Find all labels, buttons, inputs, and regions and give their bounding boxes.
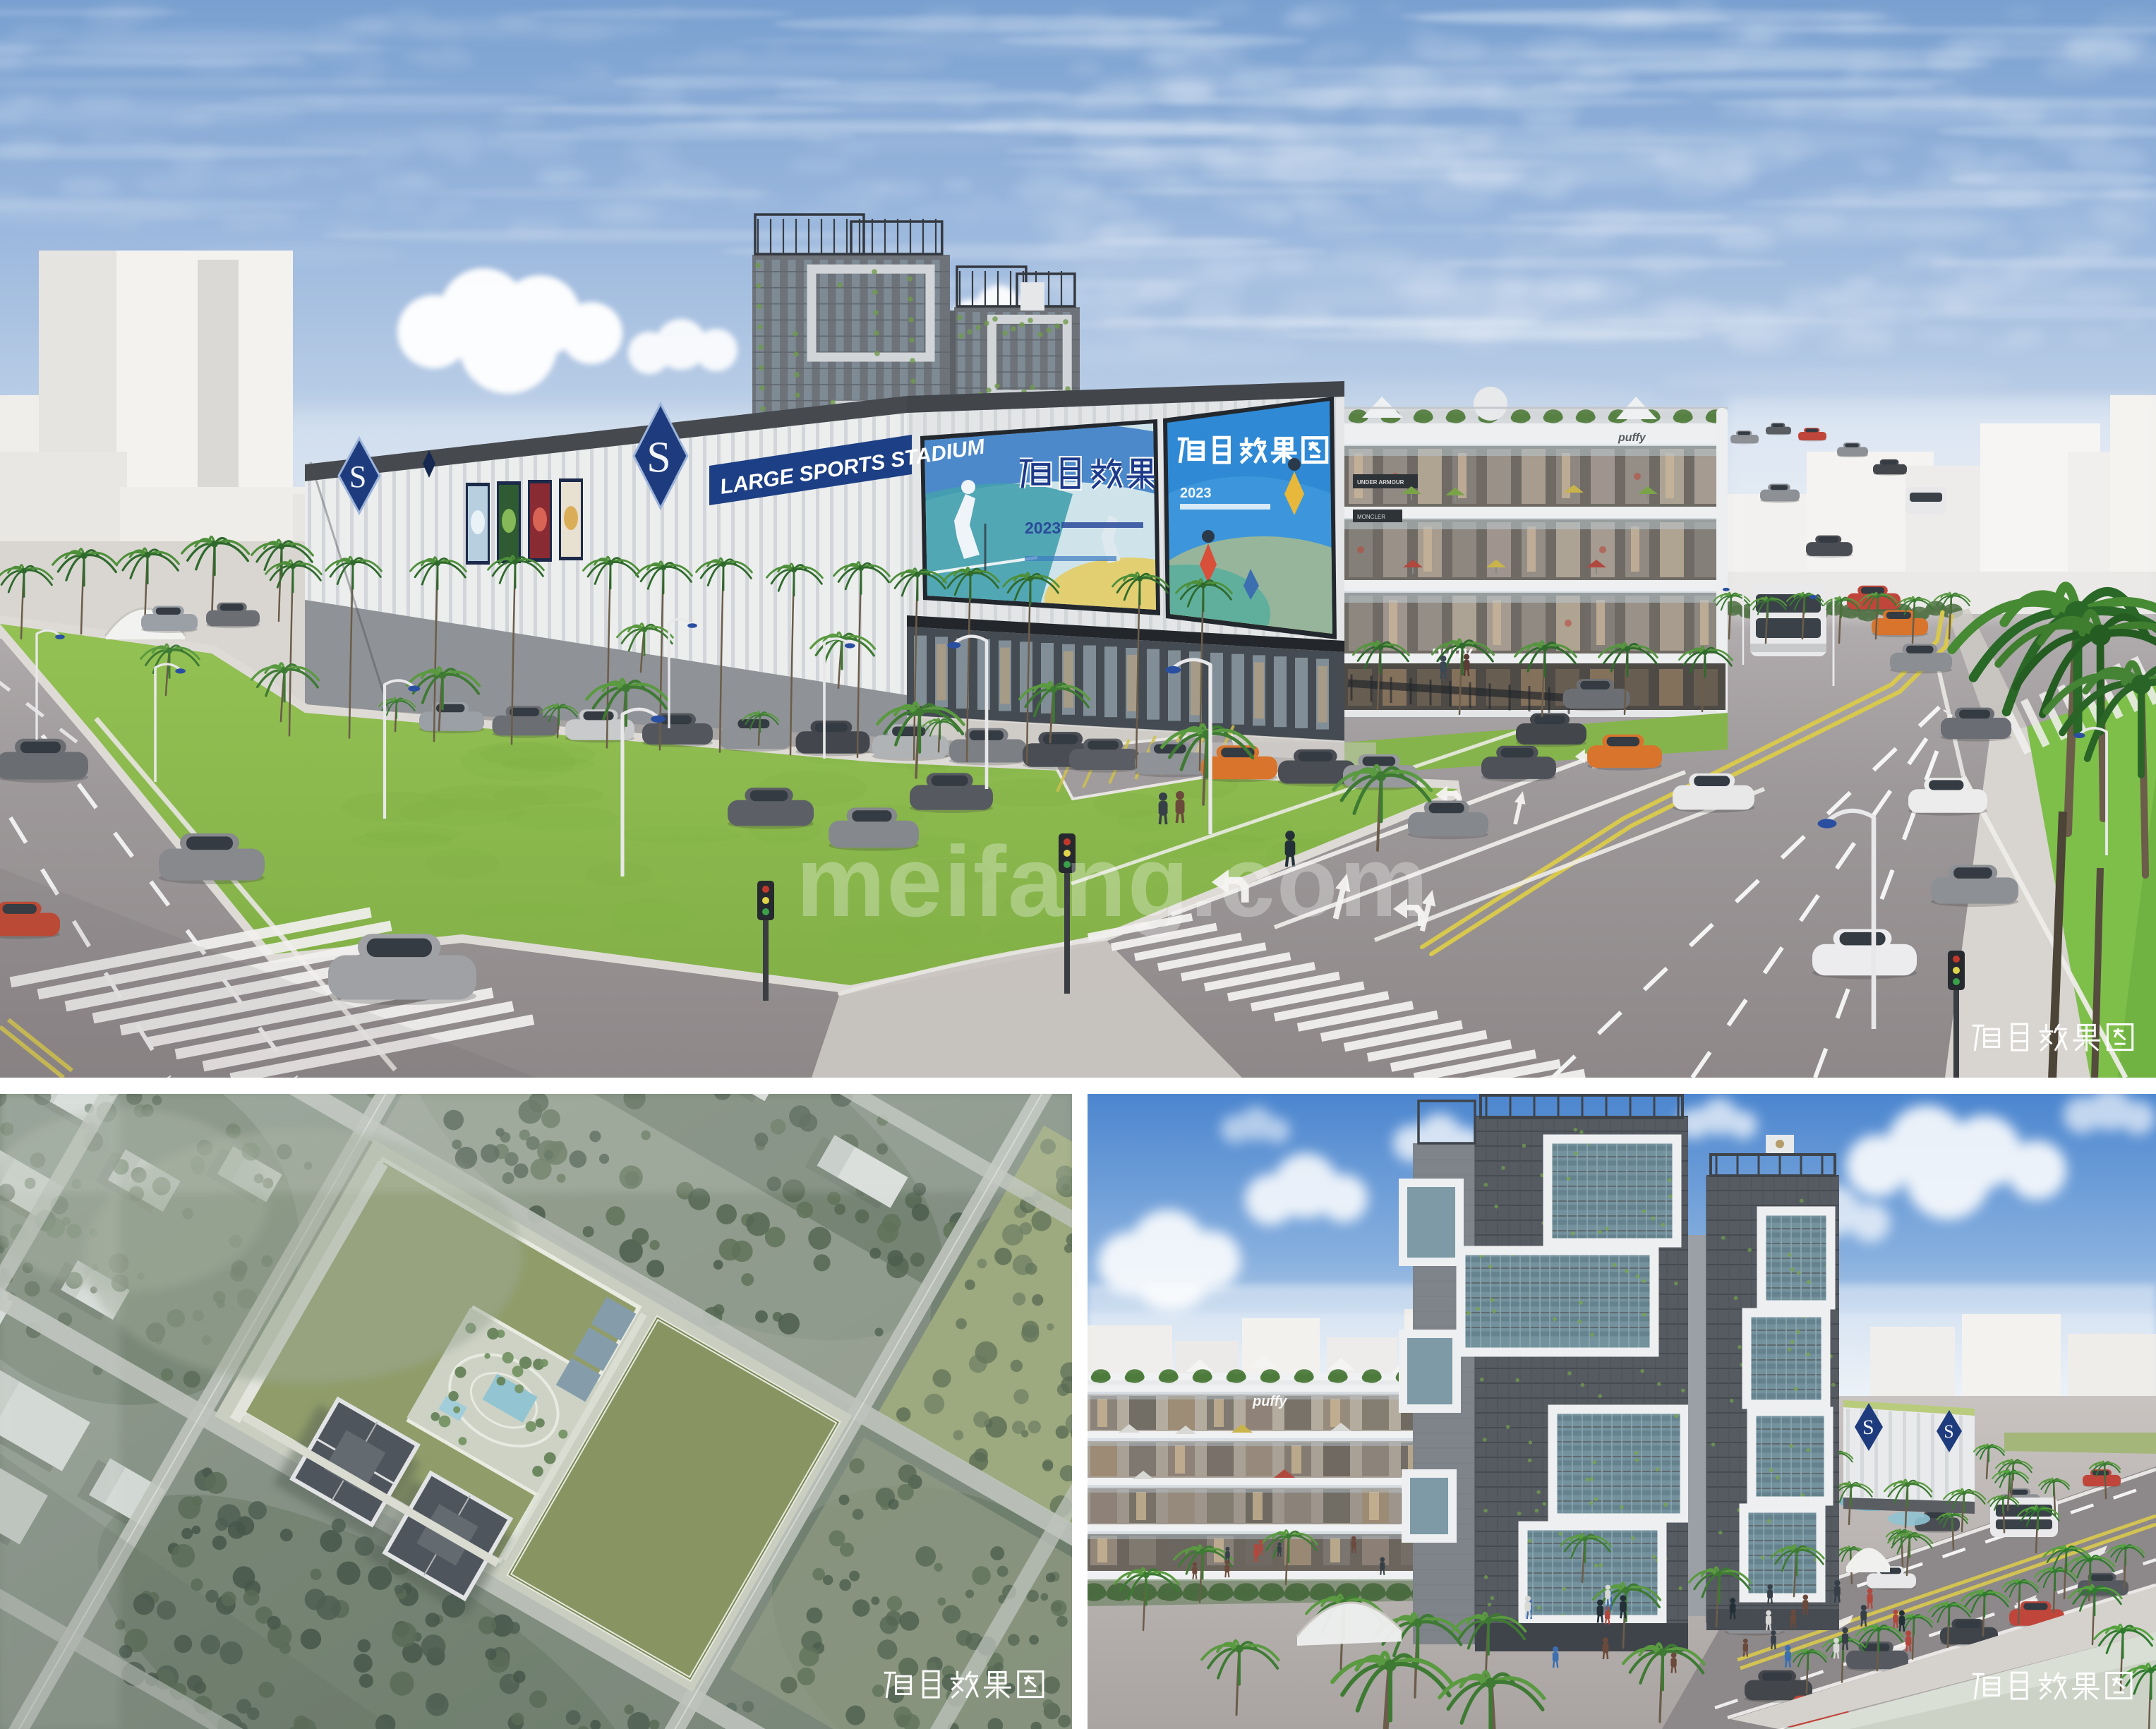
svg-text:UNDER ARMOUR: UNDER ARMOUR [1357, 479, 1404, 486]
svg-text:S: S [1862, 1416, 1874, 1439]
svg-text:2023: 2023 [1180, 486, 1212, 501]
svg-text:MONCLER: MONCLER [1357, 514, 1385, 520]
svg-text:S: S [646, 433, 670, 481]
svg-text:puffy: puffy [1618, 432, 1646, 444]
svg-text:S: S [349, 459, 366, 494]
svg-text:S: S [1944, 1421, 1953, 1442]
svg-text:2023: 2023 [1025, 519, 1061, 537]
svg-text:puffy: puffy [1252, 1394, 1287, 1409]
svg-text:meifang.com: meifang.com [796, 826, 1430, 938]
